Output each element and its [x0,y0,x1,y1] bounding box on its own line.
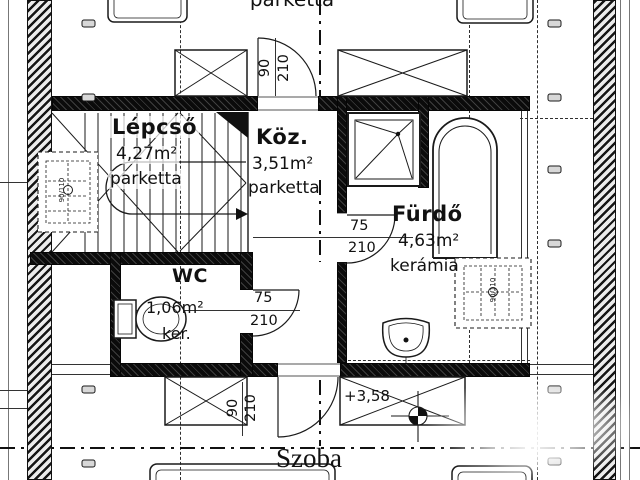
bath-door-width: 75 [350,218,368,234]
bottom-door-width: 90 [225,388,241,428]
watermark-secondary [470,420,590,475]
axis-line-top [319,0,321,96]
roof-window-left-label: 90/110 [57,170,67,210]
floor-plan: Lépcső 4,27m² parketta Köz. 3,51m² parke… [0,0,640,480]
room-area-lepcso: 4,27m² [114,146,179,164]
wall-stair-bottom [30,252,250,265]
leader-bath-door [253,237,413,238]
shower-tray [348,113,420,186]
stair-corner-wedge [216,112,248,138]
outer-wall-left [27,0,52,480]
roof-line-mid-right [469,0,470,363]
furniture-xbox-top-right [338,50,467,96]
roof-line-right-top [520,118,593,119]
bath-right-wall-1 [521,96,522,363]
tick-left-3 [0,408,27,409]
parapet-bl-2 [52,374,110,375]
bath-right-wall-2 [527,96,528,363]
furniture-xbox-top-left [175,50,247,96]
top-door-width: 90 [257,48,273,88]
room-floor-wc: ker. [162,326,191,343]
room-label-lepcso: Lépcső [110,116,199,138]
room-area-wc: 1,06m² [146,300,204,317]
bottom-door-swing [278,364,340,437]
axis-line-bottom [319,380,321,446]
furniture-bed-top-left [108,0,187,22]
level-annotation: +3,58 [344,389,390,405]
bath-door-height: 210 [348,240,376,256]
wall-top-left-segment [52,96,258,111]
walk-line-arrow [236,208,248,220]
parapet-bl-1 [52,364,110,365]
roof-line-left [180,0,181,480]
roof-line-bath-bottom [348,360,530,361]
room-label-koz: Köz. [256,126,309,148]
wall-bath-left-upper [337,96,347,213]
room-label-furdo: Fürdő [392,203,463,225]
tick-left-1 [0,182,27,183]
wc-door-width: 75 [254,290,272,306]
room-label-wc: WC [172,267,208,287]
top-room-floor-label-clipped: parketta [232,0,352,10]
bottom-door-height: 210 [243,388,259,428]
washbasin [383,319,430,364]
room-floor-furdo: kerámia [390,258,459,276]
roof-window-right-label: 90/110 [488,270,498,310]
wall-shower-stub [418,96,429,188]
room-floor-lepcso: parketta [108,171,184,189]
wall-wc-right-lower [240,333,253,377]
top-room-floor-text: parketta [232,0,352,10]
wc-door-height: 210 [250,313,278,329]
parapet-br-1 [530,364,593,365]
wall-bath-left-lower [337,262,347,363]
room-area-furdo: 4,63m² [398,233,459,251]
room-floor-koz: parketta [248,180,320,198]
wall-wc-left [110,252,121,377]
top-door-height: 210 [276,48,292,88]
room-area-koz: 3,51m² [252,156,313,174]
wall-bottom-right-segment [340,363,530,377]
tick-left-2 [0,390,27,391]
wall-wc-right-upper [240,252,253,290]
parapet-br-2 [530,374,593,375]
room-label-szoba: Szoba [276,444,342,472]
